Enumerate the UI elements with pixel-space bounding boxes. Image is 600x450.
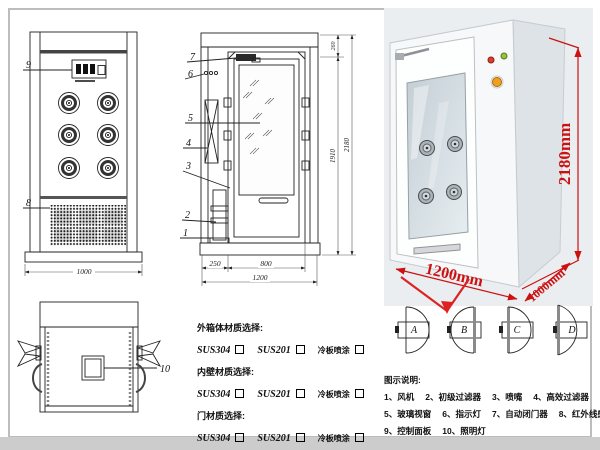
fan-unit (210, 190, 229, 243)
door-handle-side (259, 198, 288, 203)
air-grille (50, 205, 126, 246)
nozzles-front (59, 93, 119, 179)
option-label: SUS304 (197, 389, 230, 400)
material-section: 外箱体材质选择: SUS304SUS201冷板喷涂 (197, 321, 382, 358)
legend-title: 图示说明: (384, 374, 596, 386)
emergency-button (493, 78, 502, 87)
air-shower-spec-sheet: 9 8 1000 (0, 0, 600, 450)
callout-5-label: 5 (188, 113, 193, 124)
material-options-row: SUS304SUS201冷板喷涂 (197, 340, 382, 358)
indicator-lights-drawing (204, 71, 217, 74)
option-label: 冷板喷涂 (318, 390, 350, 399)
dim-260: 260 (331, 42, 337, 51)
legend-item: 8、红外线感应器 (559, 409, 600, 419)
door-option-d: D (548, 300, 592, 360)
checkbox (235, 433, 244, 442)
height-dimensions: 260 1910 2180 (320, 35, 356, 255)
width-dimensions: 250 800 1200 (202, 243, 317, 286)
option-label: SUS304 (197, 433, 230, 444)
material-options-row: SUS304SUS201冷板喷涂 (197, 384, 382, 402)
door-option-c: C (496, 300, 540, 360)
callout-9: 9 (23, 60, 72, 71)
material-section: 门材质选择: SUS304SUS201冷板喷涂 (197, 409, 382, 446)
filter-unit (205, 100, 218, 163)
checkbox (296, 345, 305, 354)
checkbox (355, 389, 364, 398)
option-label: SUS201 (257, 389, 290, 400)
legend-item: 6、指示灯 (442, 409, 481, 419)
product-photo: 2180mm 1200mm 1000mm (384, 8, 594, 308)
photo-height-label: 2180mm (555, 123, 574, 185)
option-label: SUS201 (257, 433, 290, 444)
checkbox (296, 389, 305, 398)
front-width-value: 1000 (77, 267, 92, 276)
dim-1910: 1910 (329, 149, 337, 164)
option-label: 冷板喷涂 (318, 346, 350, 355)
checkbox (296, 433, 305, 442)
legend-item: 5、玻璃视窗 (384, 409, 431, 419)
checkbox (235, 345, 244, 354)
door-option-a: A (392, 300, 436, 360)
callout-3-label: 3 (185, 161, 191, 172)
legend-item: 10、照明灯 (442, 426, 485, 436)
door-swing-options: A B C D (392, 300, 596, 360)
material-section-title: 内壁材质选择: (197, 365, 382, 378)
legend-item: 1、风机 (384, 392, 414, 402)
red-indicator-light (488, 57, 494, 63)
door-option-label: A (410, 325, 418, 336)
door-option-label: C (514, 325, 521, 336)
door-option-label: B (461, 325, 467, 336)
dim-800: 800 (260, 259, 272, 268)
option-label: 冷板喷涂 (318, 434, 350, 443)
legend-row: 1、风机2、初级过滤器3、喷嘴4、高效过滤器 (384, 391, 596, 403)
green-indicator-light (501, 53, 507, 59)
option-label: SUS201 (257, 345, 290, 356)
checkbox (235, 389, 244, 398)
material-selection: 外箱体材质选择: SUS304SUS201冷板喷涂 内壁材质选择: SUS304… (197, 314, 382, 449)
legend: 图示说明: 1、风机2、初级过滤器3、喷嘴4、高效过滤器 5、玻璃视窗6、指示灯… (384, 374, 596, 442)
legend-row: 9、控制面板10、照明灯 (384, 425, 596, 437)
dim-250: 250 (209, 259, 221, 268)
top-view-drawing: 10 (15, 296, 190, 428)
legend-item: 9、控制面板 (384, 426, 431, 436)
cabinet-3d (390, 20, 565, 287)
callout-10-label: 10 (160, 364, 170, 375)
side-view-drawing: 7 6 5 4 3 2 1 260 1910 2180 (180, 28, 388, 298)
material-section-title: 外箱体材质选择: (197, 321, 382, 334)
side-wings (18, 341, 160, 392)
door-option-label: D (567, 325, 576, 336)
material-section-title: 门材质选择: (197, 409, 382, 422)
callout-2-label: 2 (185, 210, 190, 221)
door-option-b: B (444, 300, 488, 360)
option-label: SUS304 (197, 345, 230, 356)
legend-item: 2、初级过滤器 (425, 392, 481, 402)
control-panel (72, 60, 106, 81)
ceiling-lamp (82, 356, 104, 380)
front-view-drawing: 9 8 1000 (18, 28, 178, 288)
checkbox (355, 433, 364, 442)
front-width-dimension: 1000 (25, 264, 142, 276)
legend-item: 3、喷嘴 (492, 392, 522, 402)
callout-1-label: 1 (183, 228, 188, 239)
callout-8-label: 8 (26, 198, 31, 209)
legend-row: 5、玻璃视窗6、指示灯7、自动闭门器8、红外线感应器 (384, 408, 596, 420)
legend-item: 4、高效过滤器 (533, 392, 589, 402)
door-side (224, 52, 309, 243)
top-view-outline (40, 302, 138, 412)
checkbox (355, 345, 364, 354)
dim-1200: 1200 (253, 273, 268, 282)
material-options-row: SUS304SUS201冷板喷涂 (197, 428, 382, 446)
callout-9-label: 9 (26, 60, 31, 71)
dim-2180: 2180 (343, 138, 351, 153)
legend-item: 7、自动闭门器 (492, 409, 548, 419)
material-section: 内壁材质选择: SUS304SUS201冷板喷涂 (197, 365, 382, 402)
callout-4-label: 4 (186, 138, 191, 149)
door-closer (236, 54, 256, 61)
